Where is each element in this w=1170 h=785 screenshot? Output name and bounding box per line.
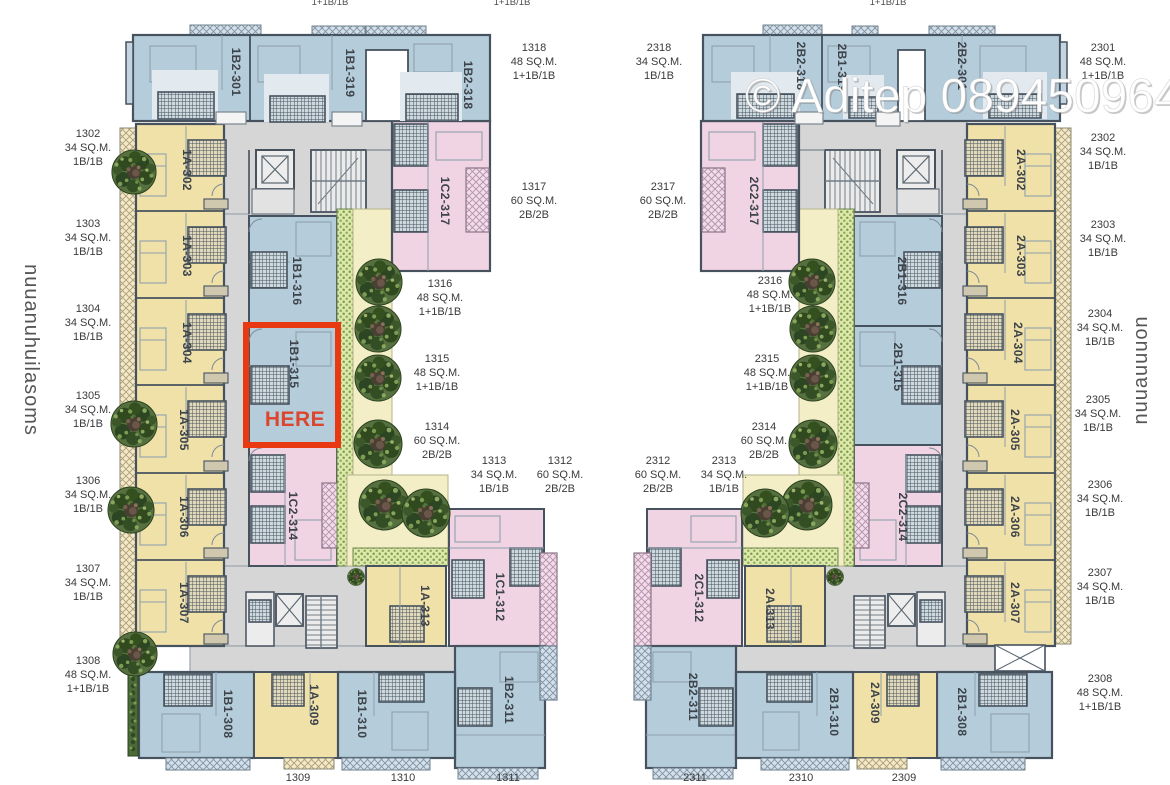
svg-text:130334 SQ.M.1B/1B: 130334 SQ.M.1B/1B (65, 218, 111, 258)
svg-text:2A-303: 2A-303 (1014, 235, 1028, 277)
svg-text:230234 SQ.M.1B/1B: 230234 SQ.M.1B/1B (1080, 132, 1126, 172)
svg-text:230334 SQ.M.1B/1B: 230334 SQ.M.1B/1B (1080, 219, 1126, 259)
svg-text:1B2-301: 1B2-301 (229, 48, 243, 97)
svg-text:131760 SQ.M.2B/2B: 131760 SQ.M.2B/2B (511, 181, 557, 221)
svg-text:2B1-315: 2B1-315 (891, 343, 905, 392)
svg-text:© Aditep 089450964: © Aditep 089450964 (745, 70, 1170, 123)
svg-text:2A-313: 2A-313 (763, 588, 777, 630)
svg-text:1A-303: 1A-303 (180, 235, 194, 277)
svg-text:130434 SQ.M.1B/1B: 130434 SQ.M.1B/1B (65, 303, 111, 343)
svg-text:231260 SQ.M.2B/2B: 231260 SQ.M.2B/2B (635, 455, 681, 495)
svg-text:1A-313: 1A-313 (418, 585, 432, 627)
svg-text:231460 SQ.M.2B/2B: 231460 SQ.M.2B/2B (741, 421, 787, 461)
svg-text:2A-304: 2A-304 (1011, 322, 1025, 364)
svg-text:1B2-318: 1B2-318 (461, 61, 475, 110)
svg-text:2309: 2309 (892, 772, 916, 784)
svg-text:1B1-316: 1B1-316 (290, 257, 304, 306)
svg-text:130734 SQ.M.1B/1B: 130734 SQ.M.1B/1B (65, 563, 111, 603)
svg-text:130634 SQ.M.1B/1B: 130634 SQ.M.1B/1B (65, 475, 111, 515)
svg-text:130848 SQ.M.1+1B/1B: 130848 SQ.M.1+1B/1B (65, 655, 111, 695)
svg-text:2A-305: 2A-305 (1008, 409, 1022, 451)
svg-text:nuuauuuon: nuuauuuon (1130, 315, 1152, 424)
svg-text:2C2-317: 2C2-317 (747, 177, 761, 226)
svg-text:2A-306: 2A-306 (1008, 496, 1022, 538)
svg-text:1B1-315: 1B1-315 (287, 340, 301, 389)
svg-text:1B1-319: 1B1-319 (343, 49, 357, 98)
svg-text:HERE: HERE (265, 408, 325, 431)
svg-text:2A-307: 2A-307 (1008, 582, 1022, 624)
svg-text:2A-309: 2A-309 (868, 682, 882, 724)
svg-text:131548 SQ.M.1+1B/1B: 131548 SQ.M.1+1B/1B (414, 353, 460, 393)
svg-text:2A-302: 2A-302 (1014, 149, 1028, 191)
svg-text:1A-305: 1A-305 (177, 409, 191, 451)
svg-text:230434 SQ.M.1B/1B: 230434 SQ.M.1B/1B (1077, 308, 1123, 348)
svg-text:231334 SQ.M.1B/1B: 231334 SQ.M.1B/1B (701, 455, 747, 495)
svg-text:1310: 1310 (391, 772, 415, 784)
svg-text:1A-302: 1A-302 (180, 149, 194, 191)
svg-text:1A-304: 1A-304 (180, 322, 194, 364)
svg-text:1C2-317: 1C2-317 (438, 177, 452, 226)
svg-text:131460 SQ.M.2B/2B: 131460 SQ.M.2B/2B (414, 421, 460, 461)
svg-text:1+1B/1B: 1+1B/1B (494, 0, 531, 8)
svg-text:nuuanuhuilasoms: nuuanuhuilasoms (20, 264, 42, 436)
svg-text:2310: 2310 (789, 772, 813, 784)
svg-text:2C2-314: 2C2-314 (896, 493, 910, 542)
svg-text:1+1B/1B: 1+1B/1B (312, 0, 349, 8)
svg-text:131648 SQ.M.1+1B/1B: 131648 SQ.M.1+1B/1B (417, 278, 463, 318)
svg-text:2B1-310: 2B1-310 (827, 688, 841, 737)
svg-text:2B1-308: 2B1-308 (955, 688, 969, 737)
svg-text:231648 SQ.M.1+1B/1B: 231648 SQ.M.1+1B/1B (747, 275, 793, 315)
svg-text:1C1-312: 1C1-312 (493, 573, 507, 622)
svg-text:231548 SQ.M.1+1B/1B: 231548 SQ.M.1+1B/1B (744, 353, 790, 393)
svg-text:1A-307: 1A-307 (177, 582, 191, 624)
svg-text:230734 SQ.M.1B/1B: 230734 SQ.M.1B/1B (1077, 567, 1123, 607)
svg-text:230534 SQ.M.1B/1B: 230534 SQ.M.1B/1B (1075, 394, 1121, 434)
svg-text:130534 SQ.M.1B/1B: 130534 SQ.M.1B/1B (65, 390, 111, 430)
svg-text:2C1-312: 2C1-312 (692, 574, 706, 623)
svg-text:1B1-310: 1B1-310 (355, 690, 369, 739)
svg-text:230634 SQ.M.1B/1B: 230634 SQ.M.1B/1B (1077, 479, 1123, 519)
svg-text:1C2-314: 1C2-314 (286, 492, 300, 541)
svg-text:2B1-316: 2B1-316 (895, 257, 909, 306)
svg-text:1A-306: 1A-306 (177, 496, 191, 538)
svg-text:131334 SQ.M.1B/1B: 131334 SQ.M.1B/1B (471, 455, 517, 495)
svg-text:1309: 1309 (286, 772, 310, 784)
svg-text:1311: 1311 (496, 772, 520, 784)
svg-text:1B1-308: 1B1-308 (221, 690, 235, 739)
svg-text:1+1B/1B: 1+1B/1B (870, 0, 907, 8)
svg-text:1A-309: 1A-309 (307, 684, 321, 726)
svg-text:2311: 2311 (683, 772, 707, 784)
svg-text:231760 SQ.M.2B/2B: 231760 SQ.M.2B/2B (640, 181, 686, 221)
svg-text:130234 SQ.M.1B/1B: 130234 SQ.M.1B/1B (65, 128, 111, 168)
svg-text:131260 SQ.M.2B/2B: 131260 SQ.M.2B/2B (537, 455, 583, 495)
svg-text:231834 SQ.M.1B/1B: 231834 SQ.M.1B/1B (636, 42, 682, 82)
svg-text:230848 SQ.M.1+1B/1B: 230848 SQ.M.1+1B/1B (1077, 673, 1123, 713)
svg-text:1B2-311: 1B2-311 (502, 676, 516, 724)
svg-text:131848 SQ.M.1+1B/1B: 131848 SQ.M.1+1B/1B (511, 42, 557, 82)
svg-text:2B2-311: 2B2-311 (686, 673, 700, 721)
